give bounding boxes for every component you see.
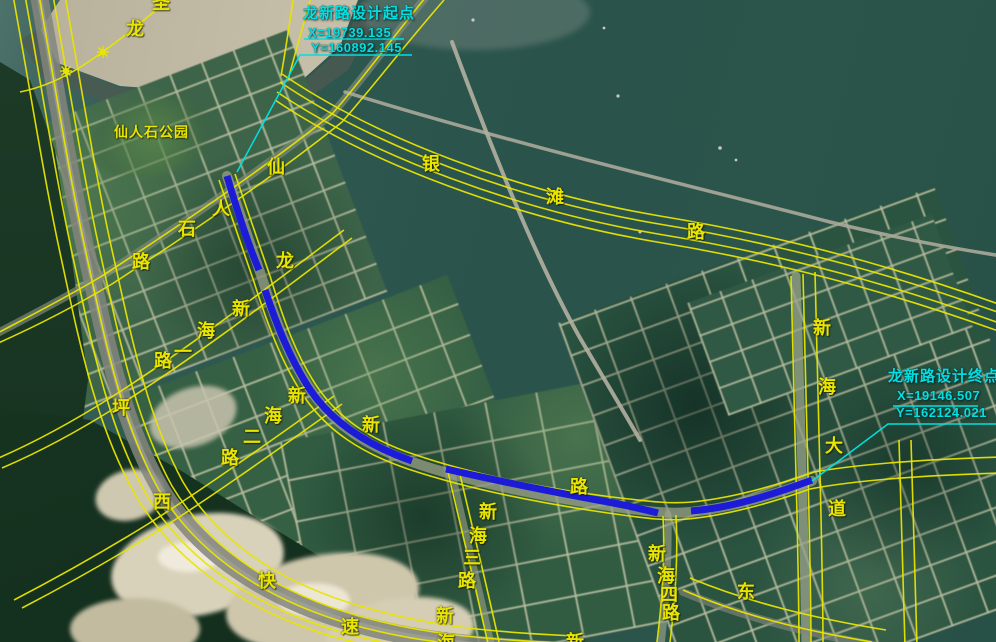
road-label-char-xinhai-2nd-road: 路 <box>221 449 239 467</box>
road-label-char-bottom-partial-labels: 新 <box>566 633 584 642</box>
road-label-char-bottom-partial-labels: 海 <box>437 634 455 642</box>
road-label-char-xianrenshi-road: 路 <box>132 253 150 271</box>
design-end-title: 龙新路设计终点 <box>888 369 996 384</box>
road-label-char-yintan-road: 银 <box>422 155 440 173</box>
road-label-char-pingxi-expressway: 快 <box>258 572 276 590</box>
design-end-x: X=19146.507 <box>897 389 980 402</box>
road-label-char-xianrenshi-road: 仙 <box>267 158 285 176</box>
road-label-char-xinhai-2nd-road: 二 <box>243 428 261 446</box>
road-label-char-xianrenshi-road: 人 <box>212 200 230 218</box>
road-label-char-xinhai-avenue: 新 <box>813 319 831 337</box>
road-name-layer: 圣龙仙人石路银滩路龙新路新海一路新海二路新海三路新海四路新海大道坪西快速东新海新 <box>0 0 996 642</box>
road-label-char-pingxi-expressway: 速 <box>341 618 359 636</box>
road-label-char-yintan-road: 路 <box>687 223 705 241</box>
road-label-char-longxin-road: 路 <box>570 478 588 496</box>
road-label-char-yintan-road: 滩 <box>546 188 564 206</box>
road-label-char-xianrenshi-road: 石 <box>178 220 196 238</box>
design-start-x: X=19739.135 <box>308 26 391 39</box>
road-label-char-xinhai-1st-road: 路 <box>154 352 172 370</box>
design-end-y: Y=162124.021 <box>896 406 987 419</box>
road-label-char-bottom-partial-labels: 新 <box>436 607 454 625</box>
road-label-char-longxin-road: 新 <box>362 416 380 434</box>
road-label-char-xinhai-3rd-road: 三 <box>463 549 481 567</box>
park-label: 仙人石公园 <box>114 122 189 142</box>
road-label-char-xinhai-avenue: 海 <box>818 378 836 396</box>
road-label-char-xinhai-4th-road: 海 <box>657 567 675 585</box>
road-label-char-top-left-road: 圣 <box>152 0 170 12</box>
road-label-char-xinhai-3rd-road: 路 <box>458 572 476 590</box>
road-label-char-longxin-road: 龙 <box>276 252 294 270</box>
road-label-char-xinhai-1st-road: 新 <box>232 300 250 318</box>
road-label-char-top-left-road: 龙 <box>126 20 144 38</box>
road-label-char-xinhai-2nd-road: 新 <box>288 387 306 405</box>
road-label-char-pingxi-expressway: 坪 <box>112 399 130 417</box>
road-label-char-east-road: 东 <box>737 583 755 601</box>
road-label-char-xinhai-3rd-road: 新 <box>479 503 497 521</box>
road-label-char-xinhai-3rd-road: 海 <box>469 527 487 545</box>
road-label-char-xinhai-avenue: 道 <box>828 500 846 518</box>
road-label-char-xinhai-4th-road: 新 <box>648 545 666 563</box>
design-start-y: Y=160892.145 <box>311 41 402 54</box>
road-label-char-xinhai-1st-road: 海 <box>197 322 215 340</box>
road-label-char-xinhai-1st-road: 一 <box>174 343 192 361</box>
design-start-title: 龙新路设计起点 <box>303 6 415 21</box>
satellite-cad-map-view[interactable]: 圣龙仙人石路银滩路龙新路新海一路新海二路新海三路新海四路新海大道坪西快速东新海新… <box>0 0 996 642</box>
road-label-char-xinhai-4th-road: 路 <box>662 604 680 622</box>
road-label-char-xinhai-2nd-road: 海 <box>264 407 282 425</box>
road-label-char-pingxi-expressway: 西 <box>153 493 171 511</box>
road-label-char-xinhai-avenue: 大 <box>825 437 843 455</box>
road-label-char-xinhai-4th-road: 四 <box>660 586 678 604</box>
